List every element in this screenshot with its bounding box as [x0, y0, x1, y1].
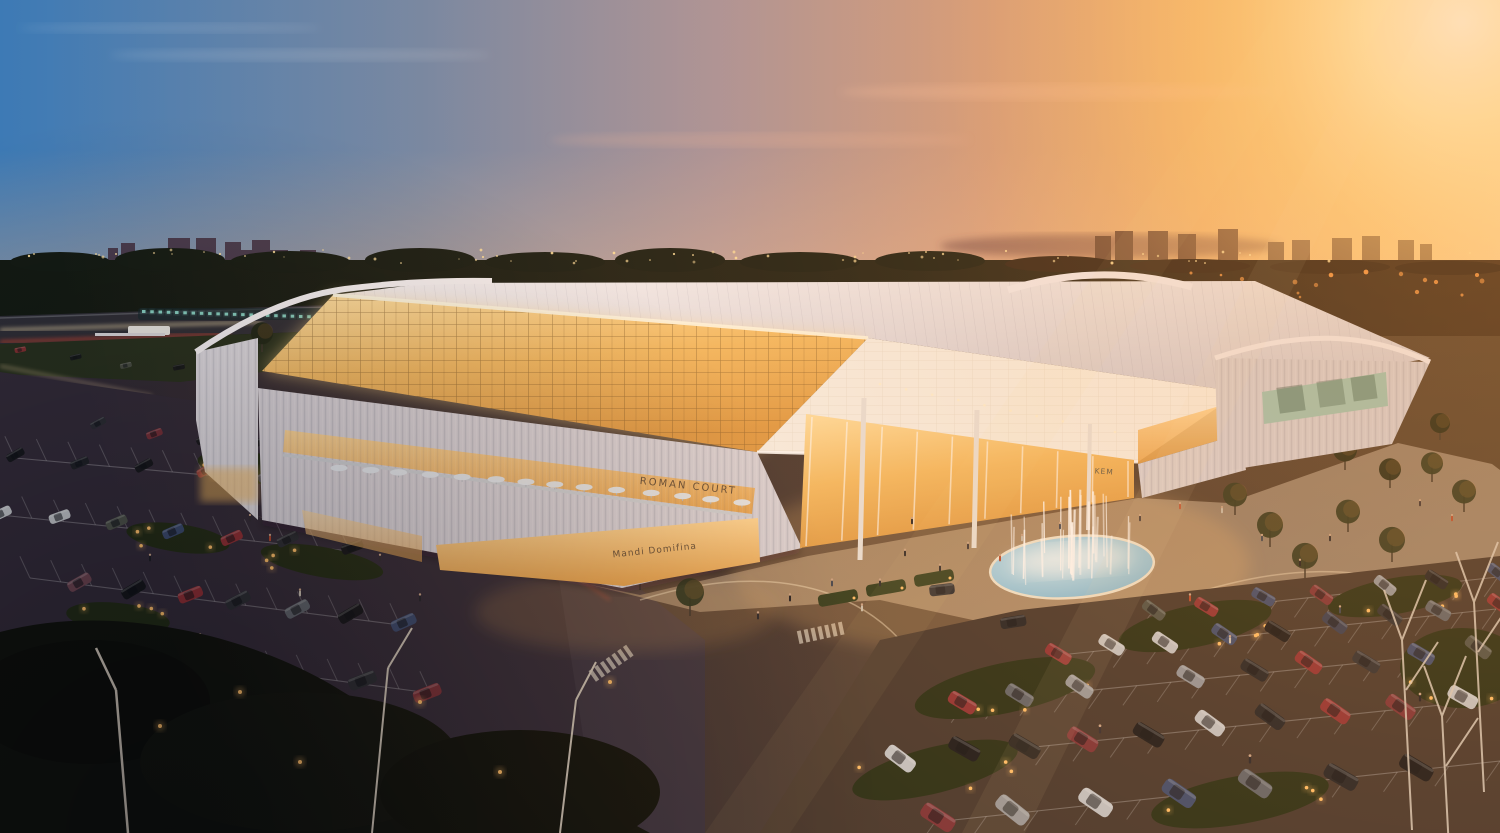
scene-canvas: ROMAN COURT Mandi Domifina KEM	[0, 0, 1500, 833]
corner-vignette	[0, 0, 1500, 833]
mall-aerial-sunset-rendering: ROMAN COURT Mandi Domifina KEM	[0, 0, 1500, 833]
